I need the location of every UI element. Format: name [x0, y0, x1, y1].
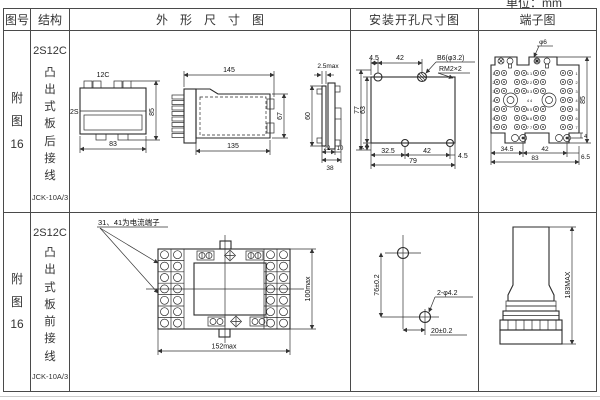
dim-label: 67 — [277, 112, 284, 120]
structure-model: 2S12C — [33, 227, 67, 239]
terminal-cell-row2: 183MAX — [479, 213, 596, 391]
current-terminal-note: 31、41为电流端子 — [98, 217, 160, 227]
dim-label: 6.5 — [581, 154, 590, 161]
thread-spec-label: RM2×2 — [439, 66, 462, 73]
terminal-row-number: 7 — [492, 126, 494, 130]
terminal-mid-number: 1 1 — [527, 72, 532, 76]
dim-label: 38 — [326, 165, 334, 172]
dim-label: 34.5 — [501, 146, 514, 153]
terminal-row-number: 4 — [492, 99, 494, 103]
fig-no-row2: 附 图 16 — [4, 213, 30, 391]
dim-label: 42 — [396, 55, 404, 62]
dim-label: 76±0.2 — [374, 274, 381, 295]
terminal-row-number: 5 — [575, 108, 577, 112]
structure-desc: 凸 出 式 板 后 接 线 — [44, 65, 56, 186]
terminal-row-number: 3 — [492, 90, 494, 94]
terminal-row-number: 6 — [575, 117, 577, 121]
dim-label: 100max — [305, 276, 312, 301]
structure-row2: 2S12C 凸 出 式 板 前 接 线 JCK-10A/3 — [31, 213, 69, 391]
terminal-row-number: 2 — [575, 81, 577, 85]
mounting-cell-row1: 4.5 42 B6(φ3.2) RM2×2 77 63 7 32.5 42 4.… — [351, 31, 478, 212]
mounting-drawing-rear-wiring: 4.5 42 B6(φ3.2) RM2×2 77 63 7 32.5 42 4.… — [351, 31, 478, 212]
dim-label: 20±0.2 — [431, 328, 452, 335]
terminal-row-number: 2 — [492, 81, 494, 85]
dim-label: 2S — [70, 109, 79, 116]
header-fig-no: 图号 — [4, 9, 30, 30]
dim-label: 83 — [531, 155, 539, 162]
outline-drawing-front-wiring: 31、41为电流端子 — [70, 213, 350, 391]
terminal-drawing-rear-wiring: φ6 — [479, 31, 596, 212]
dim-label: 22 — [324, 146, 331, 152]
dim-label: 4 — [584, 134, 587, 140]
dim-label: 79 — [409, 158, 417, 165]
outline-cell-row2: 31、41为电流端子 — [70, 213, 350, 391]
mounting-cell-row2: 76±0.2 2-φ4.2 20±0.2 — [351, 213, 478, 391]
dim-label: 4.5 — [458, 153, 468, 160]
hole-spec-label: 2-φ4.2 — [437, 290, 458, 297]
dim-label: 85 — [580, 96, 587, 104]
structure-type: JCK-10A/3 — [32, 372, 68, 381]
dim-label: 135 — [227, 143, 239, 150]
dimension-table: 图号 结构 外形尺寸图 安装开孔尺寸图 端子图 附 图 16 2S12C 凸 出… — [3, 8, 597, 392]
dim-label: 4.5 — [369, 55, 379, 62]
dim-label: 85 — [149, 108, 156, 116]
terminal-row-number: 6 — [492, 117, 494, 121]
structure-desc: 凸 出 式 板 前 接 线 — [44, 245, 56, 366]
dim-label: 32.5 — [381, 148, 395, 155]
fig-no-row1: 附 图 16 — [4, 31, 30, 212]
dim-label: 183MAX — [565, 271, 572, 298]
outline-drawing-rear-wiring: 12C 2S 83 85 145 135 — [70, 31, 350, 212]
structure-model: 2S12C — [33, 45, 67, 57]
structure-type: JCK-10A/3 — [32, 193, 68, 202]
mounting-drawing-front-wiring: 76±0.2 2-φ4.2 20±0.2 — [351, 213, 478, 391]
dim-label: 2.5max — [317, 63, 339, 70]
terminal-row-number: 1 — [575, 72, 577, 76]
dim-label: 12C — [97, 72, 110, 79]
hole-label: φ6 — [539, 39, 547, 46]
outline-cell-row1: 12C 2S 83 85 145 135 — [70, 31, 350, 212]
terminal-mid-number: 2 2 — [527, 81, 532, 85]
header-terminal: 端子图 — [479, 9, 596, 30]
header-outline: 外形尺寸图 — [70, 9, 350, 30]
terminal-mid-number: 3 3 — [527, 90, 532, 94]
dim-label: 42 — [423, 148, 431, 155]
terminal-mid-number: 6 6 — [527, 117, 532, 121]
dim-label: 7 — [359, 146, 366, 150]
terminal-row-number: 7 — [575, 126, 577, 130]
dim-label: 10 — [337, 146, 344, 152]
terminal-mid-number: 5 5 — [527, 108, 532, 112]
terminal-row-number: 5 — [492, 108, 494, 112]
dim-label: 60 — [305, 112, 312, 120]
hole-spec-label: B6(φ3.2) — [437, 55, 465, 62]
terminal-row-number: 1 — [492, 72, 494, 76]
terminal-cell-row1: φ6 — [479, 31, 596, 212]
terminal-row-number: 3 — [575, 90, 577, 94]
terminal-mid-number: 4 4 — [527, 99, 532, 103]
header-structure: 结构 — [31, 9, 69, 30]
structure-row1: 2S12C 凸 出 式 板 后 接 线 JCK-10A/3 — [31, 31, 69, 212]
dim-label: 63 — [360, 106, 367, 114]
dim-label: 145 — [223, 67, 235, 74]
dim-label: 83 — [109, 141, 117, 148]
page-bottom-rule — [0, 396, 600, 397]
dim-label: 152max — [212, 344, 237, 351]
terminal-mid-number: 7 7 — [527, 126, 532, 130]
terminal-row-number: 4 — [575, 99, 577, 103]
dim-label: 42 — [541, 146, 549, 153]
terminal-drawing-front-wiring: 183MAX — [479, 213, 596, 391]
header-mounting: 安装开孔尺寸图 — [351, 9, 478, 30]
